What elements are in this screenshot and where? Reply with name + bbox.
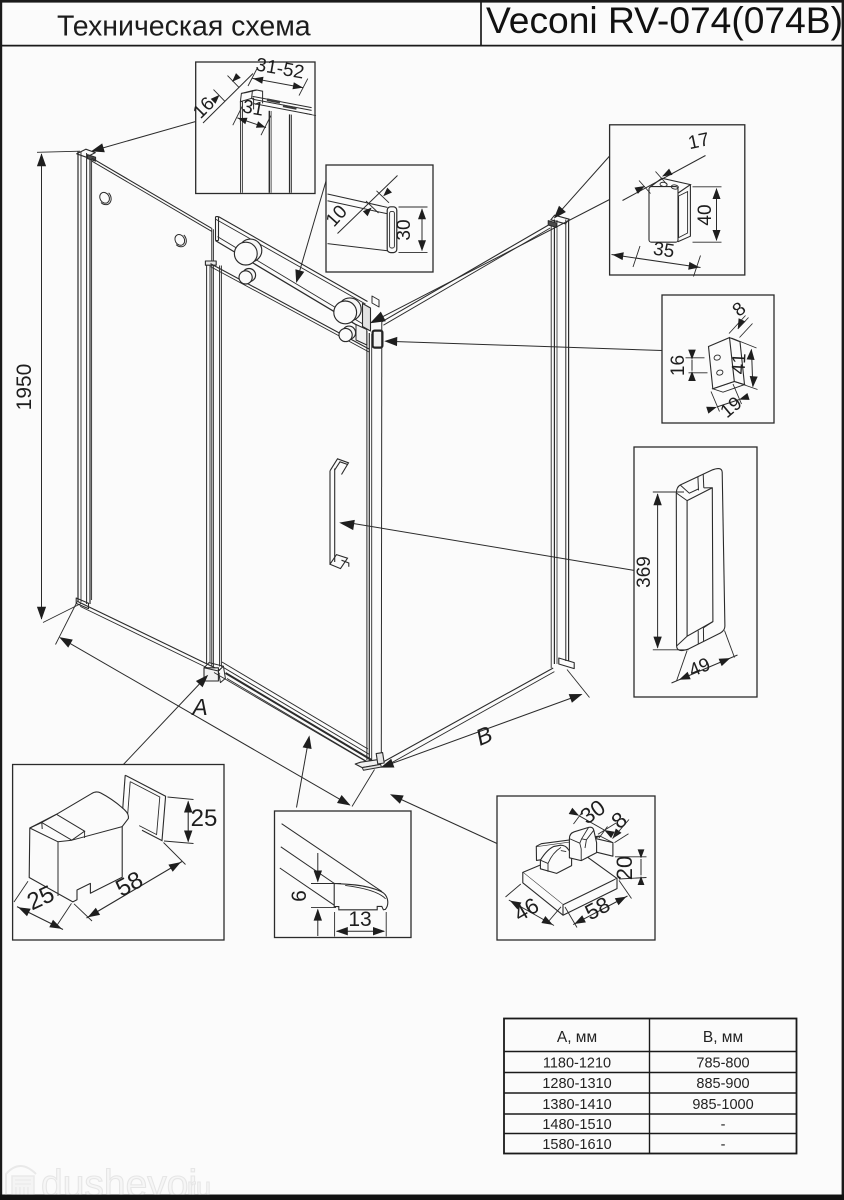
svg-text:1950: 1950 xyxy=(13,364,36,411)
svg-text:885-900: 885-900 xyxy=(696,1076,749,1092)
svg-text:1580-1610: 1580-1610 xyxy=(542,1137,611,1153)
svg-text:1480-1510: 1480-1510 xyxy=(542,1117,611,1133)
svg-text:35: 35 xyxy=(652,239,676,263)
svg-text:985-1000: 985-1000 xyxy=(692,1097,753,1113)
svg-text:В, мм: В, мм xyxy=(703,1029,743,1046)
svg-text:25: 25 xyxy=(191,805,218,832)
svg-text:Техническая схема: Техническая схема xyxy=(57,11,311,43)
svg-text:A: A xyxy=(190,694,207,720)
svg-text:1380-1410: 1380-1410 xyxy=(542,1097,611,1113)
svg-text:dushevoi: dushevoi xyxy=(41,1163,197,1200)
svg-text:31: 31 xyxy=(241,96,265,120)
svg-text:20: 20 xyxy=(612,856,637,880)
svg-text:А, мм: А, мм xyxy=(557,1029,597,1046)
svg-text:1280-1310: 1280-1310 xyxy=(542,1076,611,1092)
svg-text:17: 17 xyxy=(686,129,711,154)
svg-text:40: 40 xyxy=(695,204,716,225)
svg-text:16: 16 xyxy=(668,355,689,376)
svg-text:6: 6 xyxy=(288,890,311,902)
svg-text:-: - xyxy=(721,1137,726,1153)
svg-text:785-800: 785-800 xyxy=(696,1056,749,1072)
svg-text:369: 369 xyxy=(634,556,655,588)
svg-text:13: 13 xyxy=(348,908,371,931)
svg-text:1180-1210: 1180-1210 xyxy=(543,1056,611,1072)
svg-text:-: - xyxy=(721,1117,726,1133)
svg-text:30: 30 xyxy=(394,219,415,240)
svg-text:Veconi RV-074(074B): Veconi RV-074(074B) xyxy=(486,0,843,41)
svg-text:41: 41 xyxy=(728,353,750,375)
